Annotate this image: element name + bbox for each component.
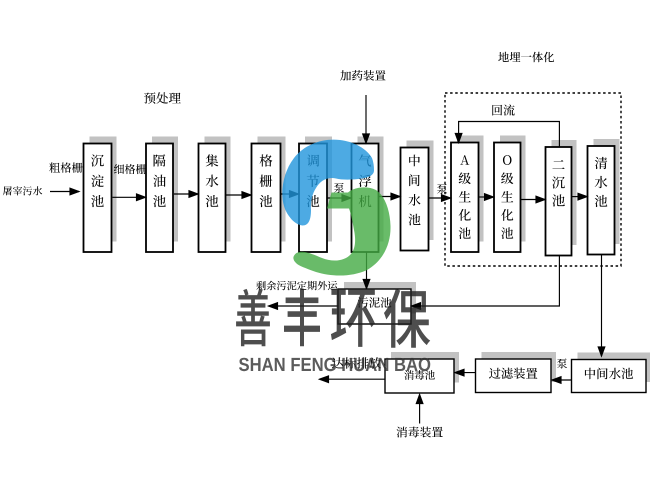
svg-text:SHAN FENG HUAN BAO: SHAN FENG HUAN BAO	[239, 355, 432, 376]
